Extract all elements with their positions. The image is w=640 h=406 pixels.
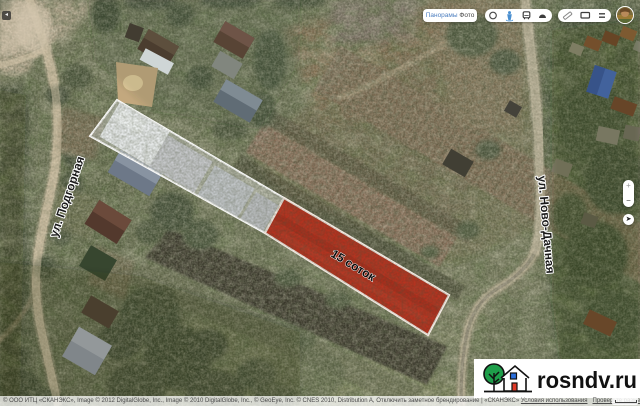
svg-text:rosndv.ru: rosndv.ru [537, 367, 637, 393]
